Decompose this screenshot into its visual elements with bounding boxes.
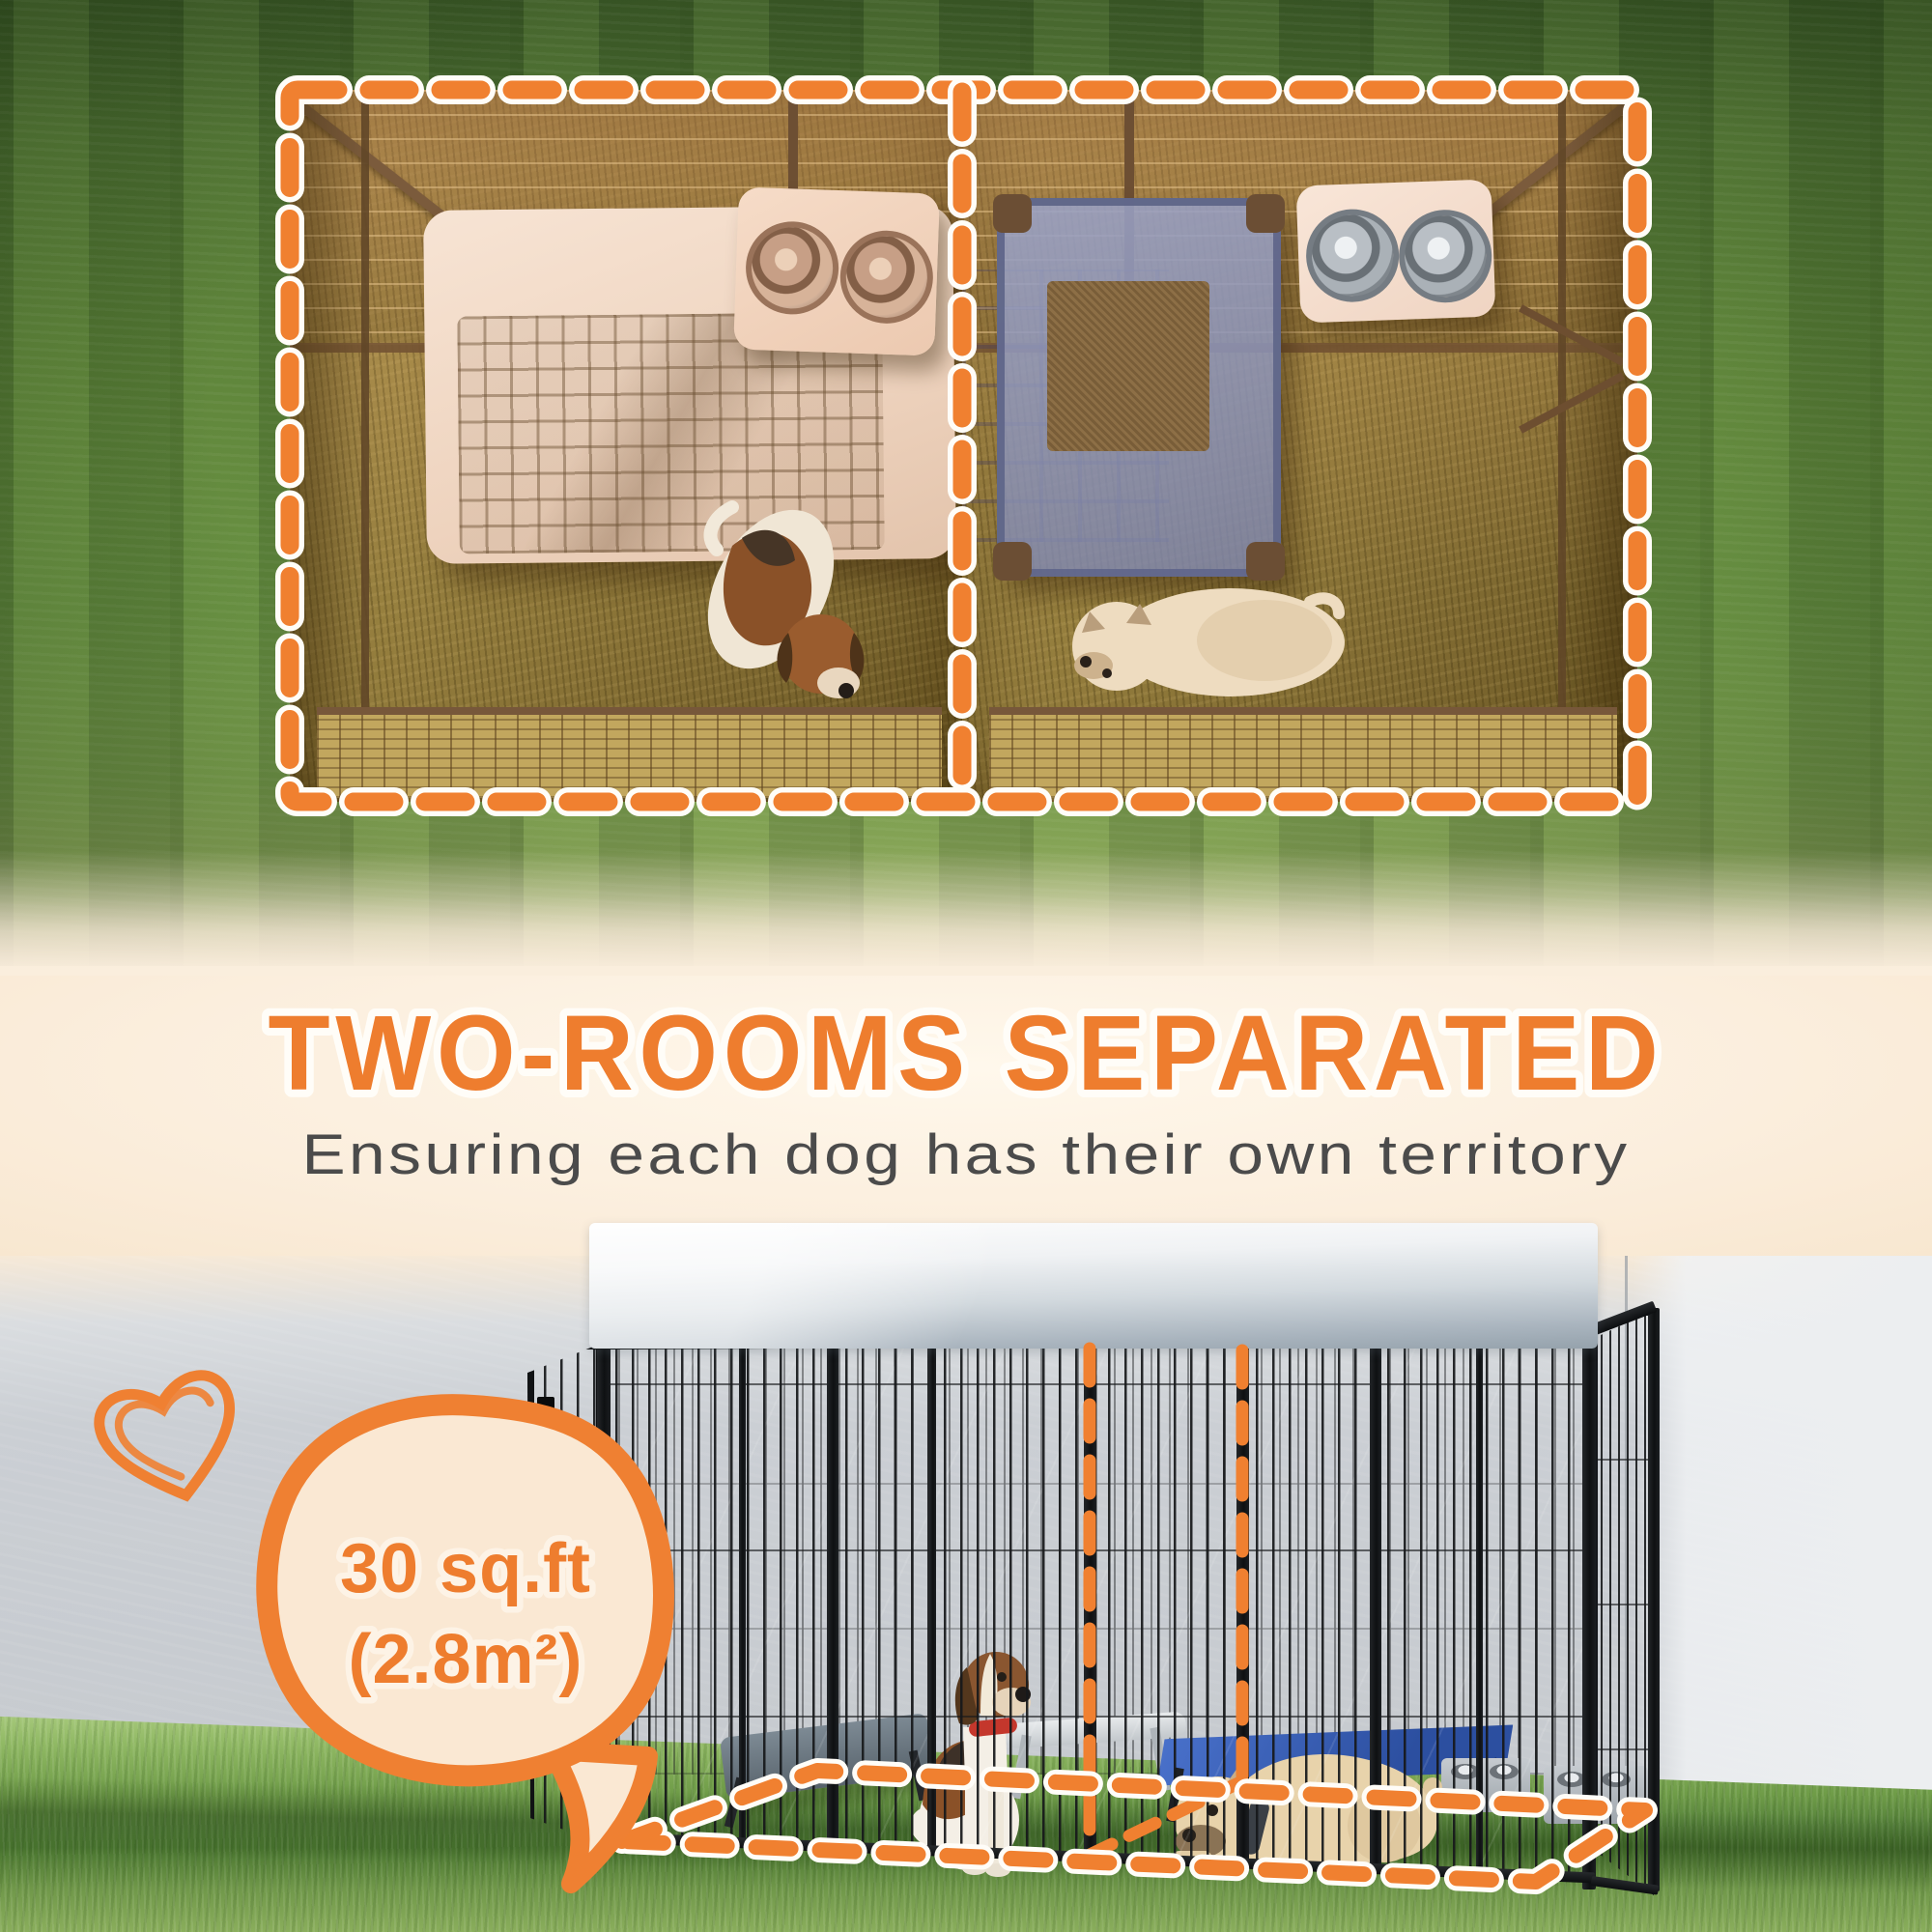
heart-doodle-icon [82, 1350, 261, 1529]
area-imperial: 30 sq.ft [340, 1530, 591, 1607]
product-feature-graphic: TWO-ROOMS SEPARATED Ensuring each dog ha… [0, 0, 1932, 1932]
headline-band: TWO-ROOMS SEPARATED Ensuring each dog ha… [0, 966, 1932, 1256]
headline-texts: TWO-ROOMS SEPARATED Ensuring each dog ha… [0, 966, 1932, 1256]
page-subtitle: Ensuring each dog has their own territor… [302, 1123, 1631, 1186]
area-metric: (2.8m²) [348, 1621, 582, 1698]
bubble-tail [552, 1750, 648, 1884]
product-photo-section: 30 sq.ft (2.8m²) [0, 1256, 1932, 1932]
room-outlines [0, 0, 1932, 976]
area-callout-bubble: 30 sq.ft (2.8m²) [227, 1381, 773, 1932]
grass-to-cream-fade [0, 850, 1932, 976]
aerial-photo-section [0, 0, 1932, 976]
page-title: TWO-ROOMS SEPARATED [269, 994, 1664, 1113]
